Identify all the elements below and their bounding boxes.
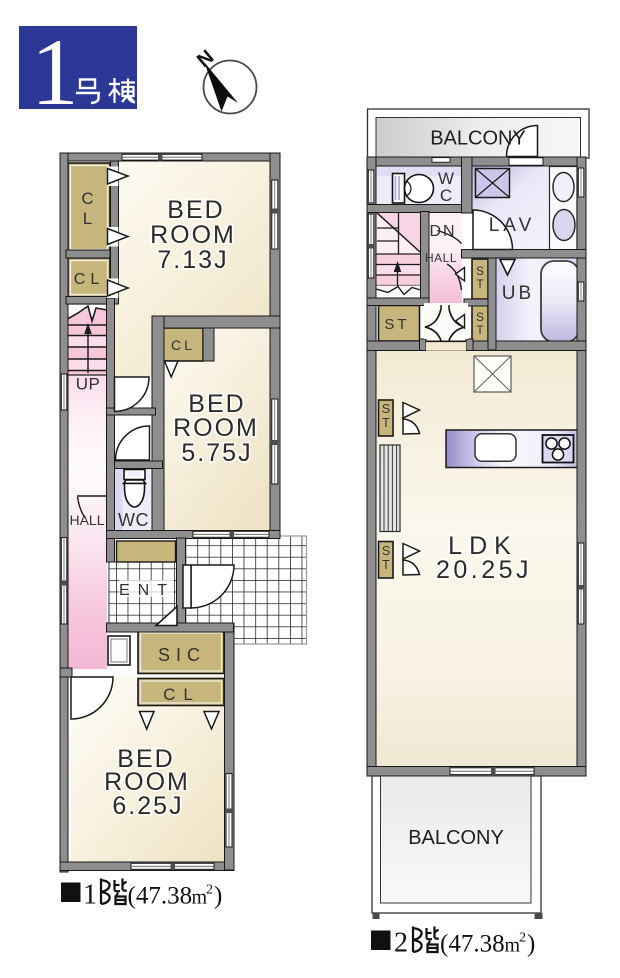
svg-text:T: T [476, 323, 484, 337]
svg-text:S: S [476, 310, 484, 324]
svg-text:20.25J: 20.25J [436, 556, 532, 584]
svg-text:1: 1 [83, 880, 97, 911]
svg-text:T: T [382, 558, 390, 572]
svg-text:C: C [81, 189, 93, 208]
svg-text:ROOM: ROOM [150, 221, 236, 249]
svg-text:): ) [527, 931, 535, 958]
svg-text:UP: UP [76, 375, 101, 394]
svg-text:CL: CL [74, 271, 104, 288]
svg-text:7.13J: 7.13J [157, 246, 228, 274]
svg-text:2: 2 [394, 928, 408, 959]
svg-text:5.75J: 5.75J [181, 439, 252, 467]
svg-text:DN: DN [429, 223, 456, 240]
svg-text:1: 1 [31, 19, 79, 125]
svg-text:BALCONY: BALCONY [408, 827, 504, 849]
svg-text:S: S [476, 264, 484, 278]
svg-text:L: L [83, 209, 92, 228]
svg-text:LAV: LAV [489, 215, 536, 236]
svg-text:T: T [382, 416, 390, 430]
svg-text:C: C [440, 186, 452, 205]
svg-text:T: T [476, 277, 484, 291]
svg-text:SIC: SIC [158, 645, 206, 665]
svg-text:CL: CL [171, 337, 195, 353]
svg-text:2: 2 [206, 883, 213, 898]
svg-text:BALCONY: BALCONY [430, 128, 526, 150]
svg-text:2: 2 [519, 931, 526, 946]
svg-text:6.25J: 6.25J [112, 792, 183, 820]
svg-text:ROOM: ROOM [173, 414, 259, 442]
svg-text:(47.38: (47.38 [440, 931, 505, 958]
svg-text:ST: ST [384, 316, 409, 333]
svg-text:): ) [214, 883, 222, 910]
svg-text:ENT: ENT [119, 582, 175, 599]
svg-text:WC: WC [118, 510, 149, 530]
svg-text:(47.38: (47.38 [128, 883, 193, 910]
svg-text:HALL: HALL [425, 251, 457, 265]
svg-text:HALL: HALL [69, 512, 104, 528]
svg-text:S: S [382, 402, 390, 416]
svg-text:UB: UB [502, 283, 534, 304]
svg-text:CL: CL [163, 685, 201, 704]
svg-text:BED: BED [167, 196, 224, 224]
svg-text:S: S [382, 544, 390, 558]
